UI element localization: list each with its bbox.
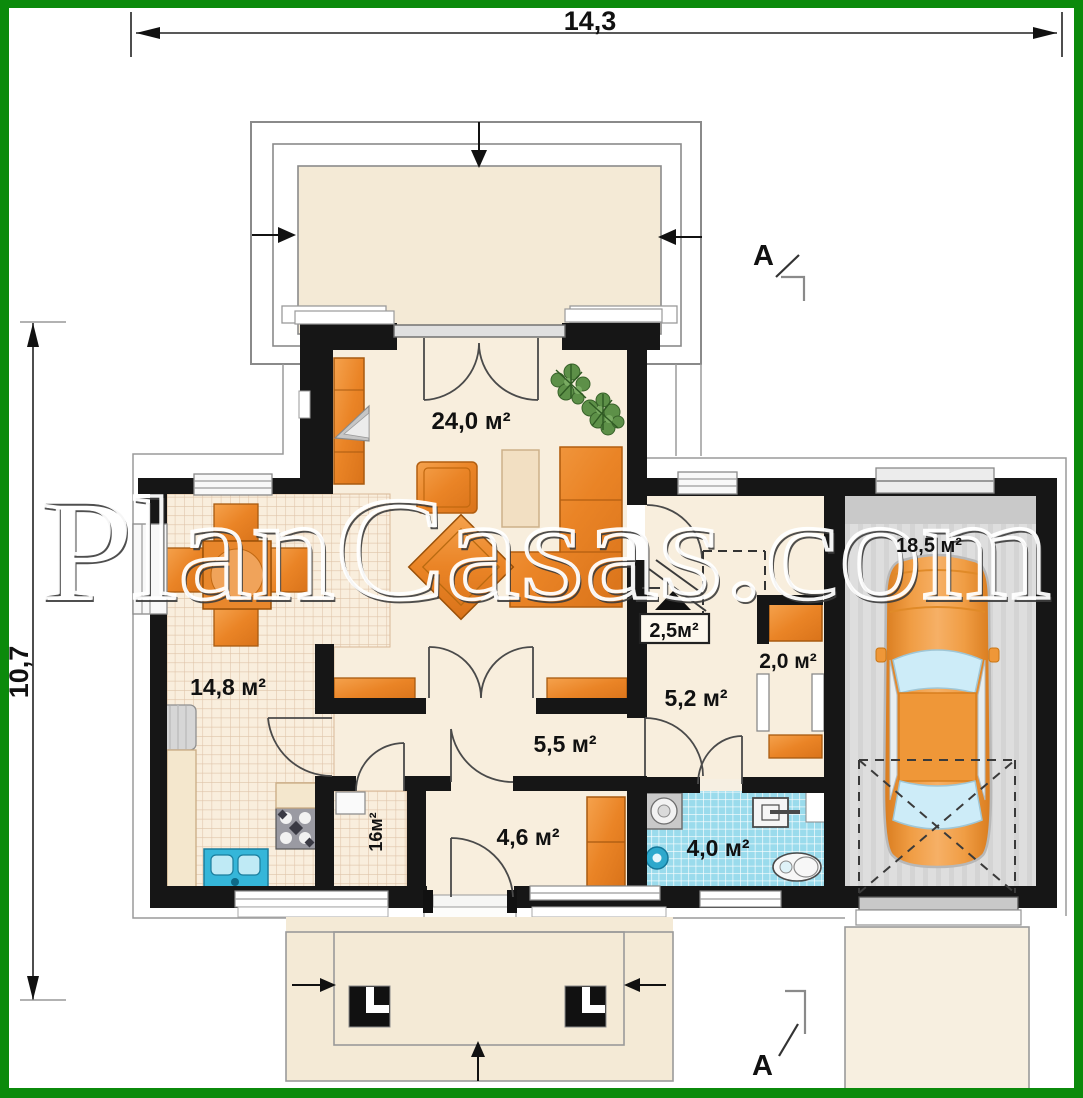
svg-text:A: A xyxy=(753,240,774,272)
svg-text:14,3: 14,3 xyxy=(564,6,617,36)
svg-text:14,8 м²: 14,8 м² xyxy=(190,674,266,700)
svg-text:4,6 м²: 4,6 м² xyxy=(496,824,559,850)
svg-text:A: A xyxy=(752,1050,773,1082)
svg-text:2,0 м²: 2,0 м² xyxy=(759,650,817,673)
svg-text:16м²: 16м² xyxy=(366,812,386,851)
svg-text:18,5 м²: 18,5 м² xyxy=(896,535,962,557)
svg-text:5,2 м²: 5,2 м² xyxy=(664,685,727,711)
svg-text:5,5 м²: 5,5 м² xyxy=(533,731,596,757)
svg-text:24,0 м²: 24,0 м² xyxy=(431,408,510,435)
svg-text:4,0 м²: 4,0 м² xyxy=(686,835,749,861)
